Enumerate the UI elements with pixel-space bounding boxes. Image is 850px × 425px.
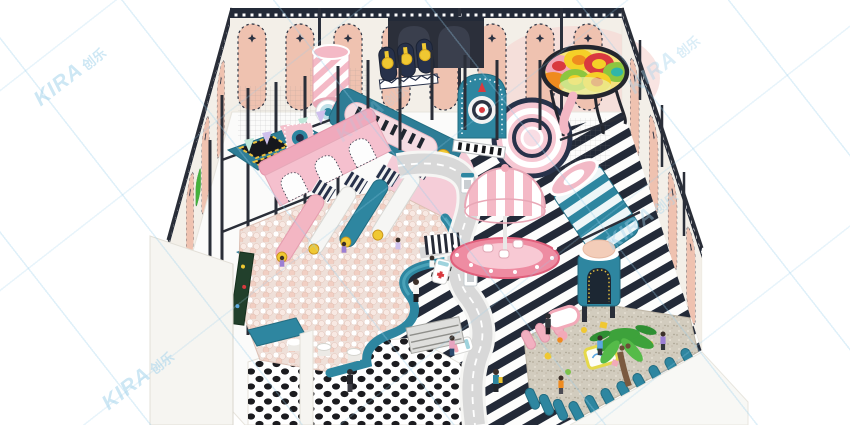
person xyxy=(449,335,455,355)
person xyxy=(280,256,285,267)
person xyxy=(545,313,551,334)
person xyxy=(660,332,665,351)
playground-render: KIRA创乐 KIRA创乐 KIRA创乐 KIRA创乐 KIRA创乐 xyxy=(0,0,850,425)
scene-canvas xyxy=(0,0,850,425)
person xyxy=(430,256,435,268)
person xyxy=(396,238,401,250)
person xyxy=(342,242,347,253)
person xyxy=(347,369,353,392)
person xyxy=(597,335,603,355)
person xyxy=(558,376,563,395)
person xyxy=(413,279,419,302)
